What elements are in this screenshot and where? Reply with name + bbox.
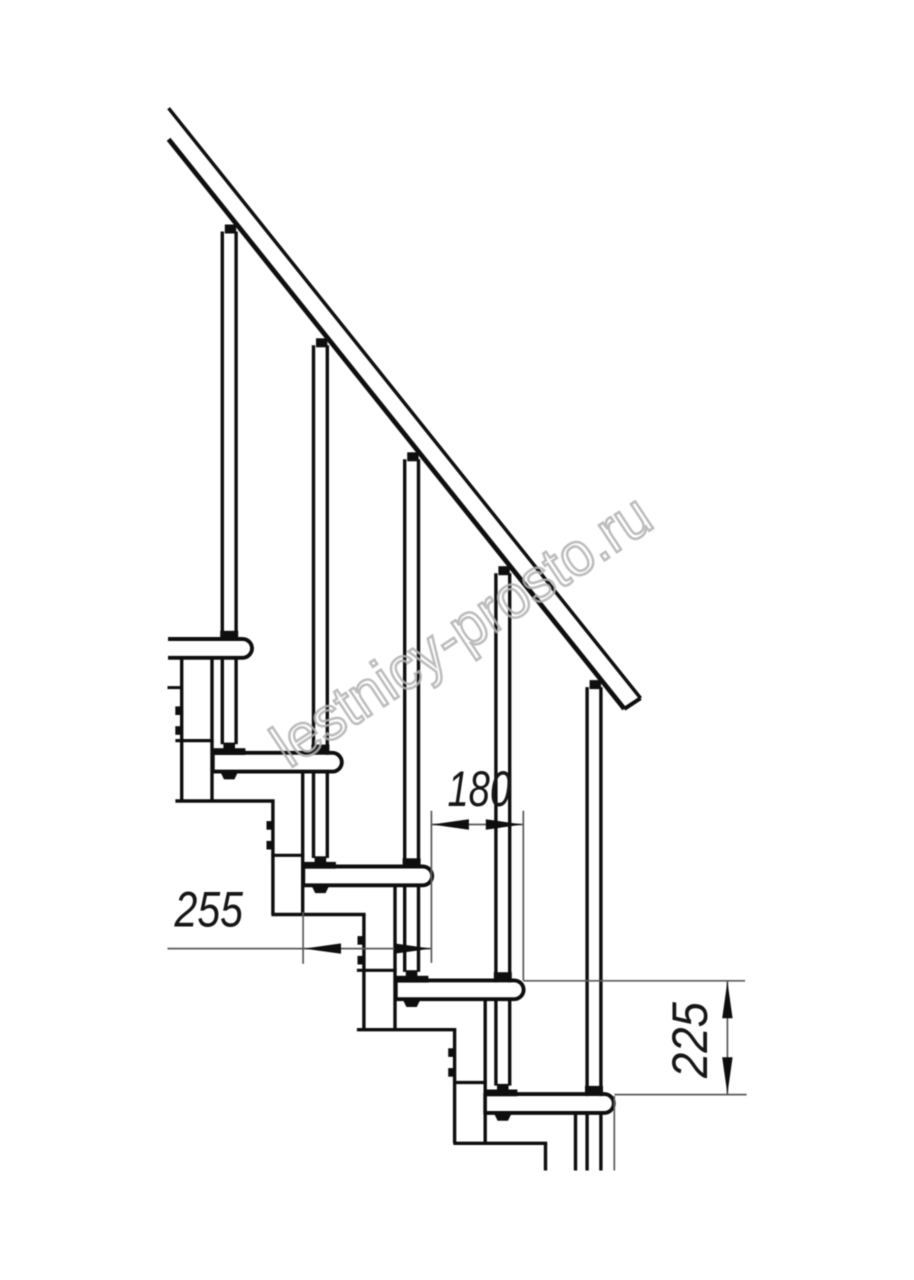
- svg-text:255: 255: [174, 882, 243, 938]
- svg-text:180: 180: [448, 761, 512, 817]
- svg-text:225: 225: [662, 1002, 718, 1079]
